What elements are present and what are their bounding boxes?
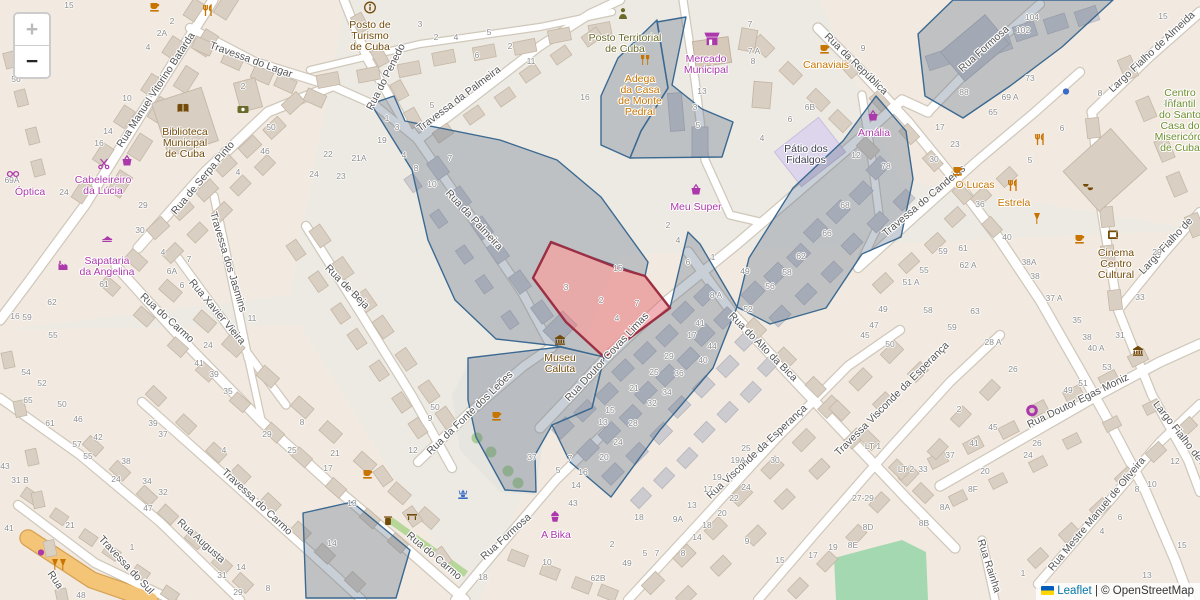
leaflet-link[interactable]: Leaflet <box>1057 585 1092 597</box>
attribution-bar: Leaflet | © OpenStreetMap <box>1036 583 1200 600</box>
osm-attribution: © OpenStreetMap <box>1101 585 1194 597</box>
building <box>1100 245 1115 266</box>
map-base-layer <box>0 0 1200 600</box>
building <box>1107 289 1122 310</box>
building <box>752 81 772 108</box>
building <box>738 28 758 52</box>
zoom-in-button[interactable]: + <box>15 14 49 46</box>
building <box>1085 117 1100 138</box>
zoom-control: + − <box>13 12 51 79</box>
ukraine-flag-icon <box>1041 586 1054 595</box>
attribution-separator: | <box>1092 585 1101 597</box>
building <box>692 37 731 68</box>
map-canvas[interactable]: Rua Manuel Vitorino BatardaTravessa do L… <box>0 0 1200 600</box>
zoom-out-button[interactable]: − <box>15 46 49 77</box>
